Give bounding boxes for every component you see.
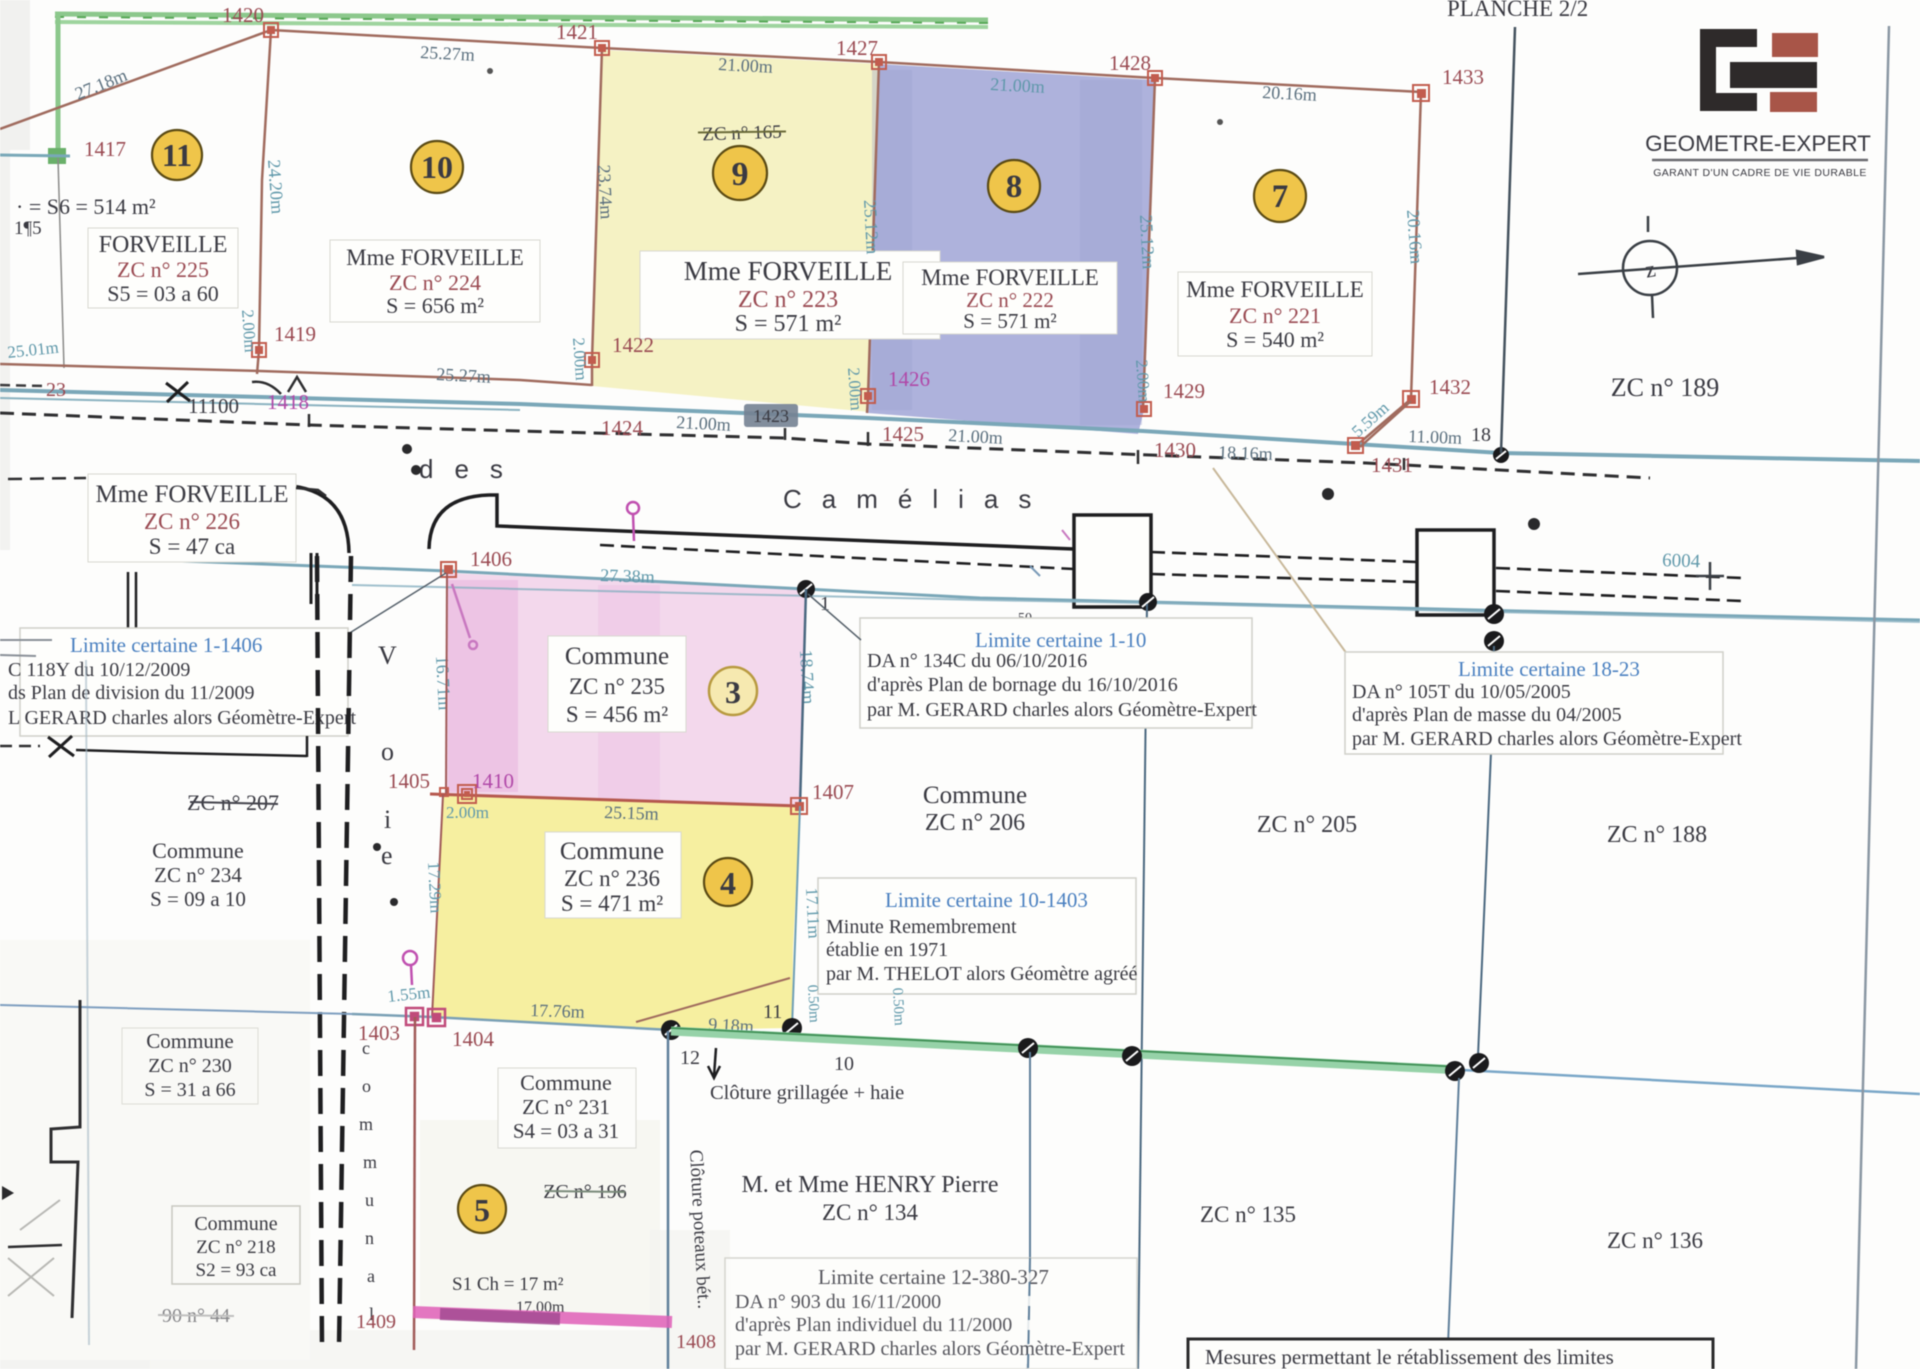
svg-text:17.76m: 17.76m xyxy=(530,1000,585,1022)
svg-text:4: 4 xyxy=(720,865,736,901)
svg-text:Limite certaine 1-10: Limite certaine 1-10 xyxy=(975,628,1146,652)
svg-text:S1 Ch = 17 m²: S1 Ch = 17 m² xyxy=(452,1274,564,1295)
svg-text:11100: 11100 xyxy=(188,394,239,418)
svg-text:8: 8 xyxy=(1006,169,1023,205)
svg-text:1432: 1432 xyxy=(1429,375,1471,399)
svg-text:2.00m: 2.00m xyxy=(844,367,866,411)
svg-text:1421: 1421 xyxy=(556,20,598,44)
svg-text:Commune: Commune xyxy=(520,1070,612,1095)
svg-text:d'après Plan individuel du 11/: d'après Plan individuel du 11/2000 xyxy=(735,1314,1012,1336)
svg-text:23: 23 xyxy=(46,379,66,401)
svg-text:i: i xyxy=(384,805,391,834)
svg-text:DA n° 134C du 06/10/2016: DA n° 134C du 06/10/2016 xyxy=(867,650,1087,672)
svg-text:S = 571 m²: S = 571 m² xyxy=(735,311,842,337)
svg-text:Limite certaine 18-23: Limite certaine 18-23 xyxy=(1458,657,1640,681)
svg-text:ZC n° 230: ZC n° 230 xyxy=(148,1055,232,1077)
svg-text:ds Plan de division du 11/2009: ds Plan de division du 11/2009 xyxy=(8,682,254,704)
svg-text:9: 9 xyxy=(732,156,749,193)
svg-text:7: 7 xyxy=(1272,179,1289,215)
svg-text:1424: 1424 xyxy=(601,416,644,440)
svg-text:2.00m: 2.00m xyxy=(569,337,591,381)
svg-text:GARANT D'UN CADRE DE VIE DURAB: GARANT D'UN CADRE DE VIE DURABLE xyxy=(1653,167,1867,179)
svg-text:m: m xyxy=(359,1114,373,1134)
svg-text:DA n° 105T du 10/05/2005: DA n° 105T du 10/05/2005 xyxy=(1352,681,1571,703)
svg-text:ZC n° 165: ZC n° 165 xyxy=(702,122,782,146)
svg-text:S = 31 a 66: S = 31 a 66 xyxy=(144,1079,235,1101)
svg-text:m: m xyxy=(363,1152,377,1172)
svg-text:Minute Remembrement: Minute Remembrement xyxy=(826,916,1017,938)
svg-text:C 118Y du 10/12/2009: C 118Y du 10/12/2009 xyxy=(8,659,190,681)
svg-text:ZC n° 188: ZC n° 188 xyxy=(1607,822,1707,848)
svg-text:Mesures permettant le rétablis: Mesures permettant le rétablissement des… xyxy=(1205,1345,1614,1369)
svg-text:24.20m: 24.20m xyxy=(264,159,288,215)
svg-text:1417: 1417 xyxy=(84,137,126,161)
svg-text:3: 3 xyxy=(725,674,741,710)
svg-text:1420: 1420 xyxy=(222,3,264,27)
svg-text:10: 10 xyxy=(421,149,453,185)
svg-text:1428: 1428 xyxy=(1109,51,1151,75)
svg-text:S = 09 a 10: S = 09 a 10 xyxy=(150,887,246,911)
svg-text:0.50m: 0.50m xyxy=(804,984,822,1023)
svg-text:a: a xyxy=(367,1266,375,1286)
svg-text:27.38m: 27.38m xyxy=(600,565,655,587)
svg-text:21.00m: 21.00m xyxy=(948,425,1003,448)
svg-text:e: e xyxy=(381,841,393,870)
svg-text:ZC n° 221: ZC n° 221 xyxy=(1229,303,1321,328)
svg-text:ZC n° 218: ZC n° 218 xyxy=(196,1237,275,1258)
svg-text:18: 18 xyxy=(1471,424,1491,446)
svg-text:6004: 6004 xyxy=(1662,550,1701,572)
svg-text:1409: 1409 xyxy=(356,1311,396,1333)
svg-text:o: o xyxy=(381,737,394,766)
svg-text:Commune: Commune xyxy=(923,782,1027,809)
svg-text:1423: 1423 xyxy=(753,406,789,426)
svg-text:établie en 1971: établie en 1971 xyxy=(826,939,948,961)
svg-text:Commune: Commune xyxy=(194,1213,277,1235)
svg-text:17.29m: 17.29m xyxy=(424,861,446,913)
svg-text:ZC n° 223: ZC n° 223 xyxy=(738,287,838,313)
svg-text:o: o xyxy=(362,1076,371,1096)
svg-text:ZC n° 205: ZC n° 205 xyxy=(1257,812,1357,838)
svg-text:25.27m: 25.27m xyxy=(436,364,491,387)
svg-text:1427: 1427 xyxy=(836,36,878,60)
svg-text:23.74m: 23.74m xyxy=(594,164,617,219)
svg-text:GEOMETRE-EXPERT: GEOMETRE-EXPERT xyxy=(1645,131,1871,156)
svg-text:ZC n° 136: ZC n° 136 xyxy=(1607,1228,1703,1253)
svg-text:Commune: Commune xyxy=(565,643,669,670)
svg-text:1406: 1406 xyxy=(470,547,512,571)
svg-text:FORVEILLE: FORVEILLE xyxy=(99,232,228,258)
svg-text:Clôture grillagée + haie: Clôture grillagée + haie xyxy=(710,1082,904,1104)
svg-text:u: u xyxy=(365,1190,374,1210)
svg-text:1429: 1429 xyxy=(1163,379,1205,403)
svg-text:L GERARD charles alors Géomètr: L GERARD charles alors Géomètre-Expert xyxy=(8,707,356,729)
svg-text:Mme FORVEILLE: Mme FORVEILLE xyxy=(95,481,288,508)
svg-text:11.00m: 11.00m xyxy=(1408,426,1463,448)
svg-text:n: n xyxy=(365,1228,374,1248)
svg-text:25.12m: 25.12m xyxy=(1136,214,1159,269)
svg-text:S2 = 93 ca: S2 = 93 ca xyxy=(196,1260,277,1281)
svg-text:ZC n° 235: ZC n° 235 xyxy=(569,674,665,699)
svg-text:1404: 1404 xyxy=(452,1027,495,1051)
svg-text:des: des xyxy=(419,454,524,484)
svg-text:1405: 1405 xyxy=(388,769,430,793)
svg-text:· = S6 = 514 m²: · = S6 = 514 m² xyxy=(16,194,156,219)
svg-text:1433: 1433 xyxy=(1442,65,1484,89)
svg-text:1426: 1426 xyxy=(888,367,930,391)
svg-text:S = 47 ca: S = 47 ca xyxy=(149,534,235,559)
svg-text:Limite certaine 1-1406: Limite certaine 1-1406 xyxy=(70,633,262,657)
svg-text:S = 656 m²: S = 656 m² xyxy=(386,293,484,318)
svg-text:1430: 1430 xyxy=(1154,438,1196,462)
svg-text:10: 10 xyxy=(834,1053,854,1075)
svg-text:20.16m: 20.16m xyxy=(1262,82,1317,105)
svg-text:ZC n° 189: ZC n° 189 xyxy=(1611,373,1720,402)
svg-text:16.71m: 16.71m xyxy=(432,655,455,710)
svg-text:1¶5: 1¶5 xyxy=(14,218,42,239)
svg-text:Mme FORVEILLE: Mme FORVEILLE xyxy=(921,265,1099,290)
svg-text:ZC n° 236: ZC n° 236 xyxy=(564,866,660,891)
svg-text:18.74m: 18.74m xyxy=(796,649,819,704)
svg-text:S = 540 m²: S = 540 m² xyxy=(1226,327,1324,352)
svg-text:21.00m: 21.00m xyxy=(990,74,1045,97)
svg-text:PLANCHE 2/2: PLANCHE 2/2 xyxy=(1447,0,1588,21)
svg-text:2.00m: 2.00m xyxy=(238,309,260,353)
svg-text:ZC n° 206: ZC n° 206 xyxy=(925,810,1025,836)
svg-text:ZC n° 226: ZC n° 226 xyxy=(144,509,240,534)
svg-text:5: 5 xyxy=(474,1192,490,1228)
svg-text:Limite certaine 12-380-327: Limite certaine 12-380-327 xyxy=(818,1265,1049,1289)
svg-text:S5 = 03 a 60: S5 = 03 a 60 xyxy=(107,281,218,306)
svg-text:20.16m: 20.16m xyxy=(1403,209,1427,265)
svg-text:ZC n° 224: ZC n° 224 xyxy=(389,270,481,295)
svg-text:1418: 1418 xyxy=(267,390,309,414)
svg-text:M. et Mme HENRY Pierre: M. et Mme HENRY Pierre xyxy=(741,1172,998,1198)
svg-text:1419: 1419 xyxy=(274,322,316,346)
svg-text:Limite certaine 10-1403: Limite certaine 10-1403 xyxy=(885,888,1088,912)
svg-text:2.00m: 2.00m xyxy=(1132,359,1154,403)
svg-text:1408: 1408 xyxy=(676,1331,716,1353)
svg-text:Commune: Commune xyxy=(146,1029,234,1053)
svg-text:ZC n° 134: ZC n° 134 xyxy=(822,1200,919,1225)
svg-text:d'après Plan de bornage du 16/: d'après Plan de bornage du 16/10/2016 xyxy=(867,674,1178,696)
svg-text:ZC n° 234: ZC n° 234 xyxy=(154,863,242,887)
svg-text:25.12m: 25.12m xyxy=(860,199,883,254)
svg-text:par M. GERARD charles alors Gé: par M. GERARD charles alors Géomètre-Exp… xyxy=(867,699,1257,721)
svg-text:11: 11 xyxy=(763,1001,782,1023)
svg-text:Mme FORVEILLE: Mme FORVEILLE xyxy=(1186,277,1364,302)
svg-text:11: 11 xyxy=(162,137,192,173)
svg-text:S = 456 m²: S = 456 m² xyxy=(566,702,668,727)
svg-text:21.00m: 21.00m xyxy=(676,412,731,435)
svg-text:1422: 1422 xyxy=(612,333,654,357)
svg-text:par M. GERARD charles alors Gé: par M. GERARD charles alors Géomètre-Exp… xyxy=(735,1338,1125,1360)
svg-text:21.00m: 21.00m xyxy=(718,54,773,77)
svg-text:ZC n° 225: ZC n° 225 xyxy=(117,257,209,282)
svg-text:Mme FORVEILLE: Mme FORVEILLE xyxy=(346,245,524,270)
svg-text:S4 = 03 a 31: S4 = 03 a 31 xyxy=(513,1119,619,1143)
svg-text:DA n° 903 du 16/11/2000: DA n° 903 du 16/11/2000 xyxy=(735,1291,941,1313)
svg-text:25.15m: 25.15m xyxy=(604,802,659,824)
svg-text:Mme FORVEILLE: Mme FORVEILLE xyxy=(684,256,893,286)
svg-text:V: V xyxy=(378,641,397,670)
svg-text:par M. THELOT alors Géomètre a: par M. THELOT alors Géomètre agréé xyxy=(826,963,1137,985)
svg-text:S = 571 m²: S = 571 m² xyxy=(963,309,1056,333)
svg-text:Commune: Commune xyxy=(152,838,244,863)
svg-text:S = 471 m²: S = 471 m² xyxy=(561,891,663,916)
svg-text:ZC n° 231: ZC n° 231 xyxy=(522,1095,610,1119)
svg-text:18.16m: 18.16m xyxy=(1218,442,1273,464)
svg-text:2.00m: 2.00m xyxy=(446,803,489,822)
svg-text:ZC n° 135: ZC n° 135 xyxy=(1200,1202,1296,1227)
svg-text:Camélias: Camélias xyxy=(783,484,1051,514)
svg-text:1431: 1431 xyxy=(1371,453,1413,477)
svg-text:1407: 1407 xyxy=(812,780,854,804)
svg-text:1403: 1403 xyxy=(358,1021,400,1045)
svg-text:25.27m: 25.27m xyxy=(420,42,475,65)
svg-text:1410: 1410 xyxy=(472,769,514,793)
svg-text:d'après Plan de masse du 04/20: d'après Plan de masse du 04/2005 xyxy=(1352,704,1622,726)
svg-text:1425: 1425 xyxy=(882,422,924,446)
svg-text:Commune: Commune xyxy=(560,838,664,865)
svg-text:0.50m: 0.50m xyxy=(889,987,907,1026)
svg-text:12: 12 xyxy=(680,1047,700,1069)
svg-text:17.11m: 17.11m xyxy=(802,887,824,939)
svg-text:par M. GERARD charles alors Gé: par M. GERARD charles alors Géomètre-Exp… xyxy=(1352,728,1742,750)
